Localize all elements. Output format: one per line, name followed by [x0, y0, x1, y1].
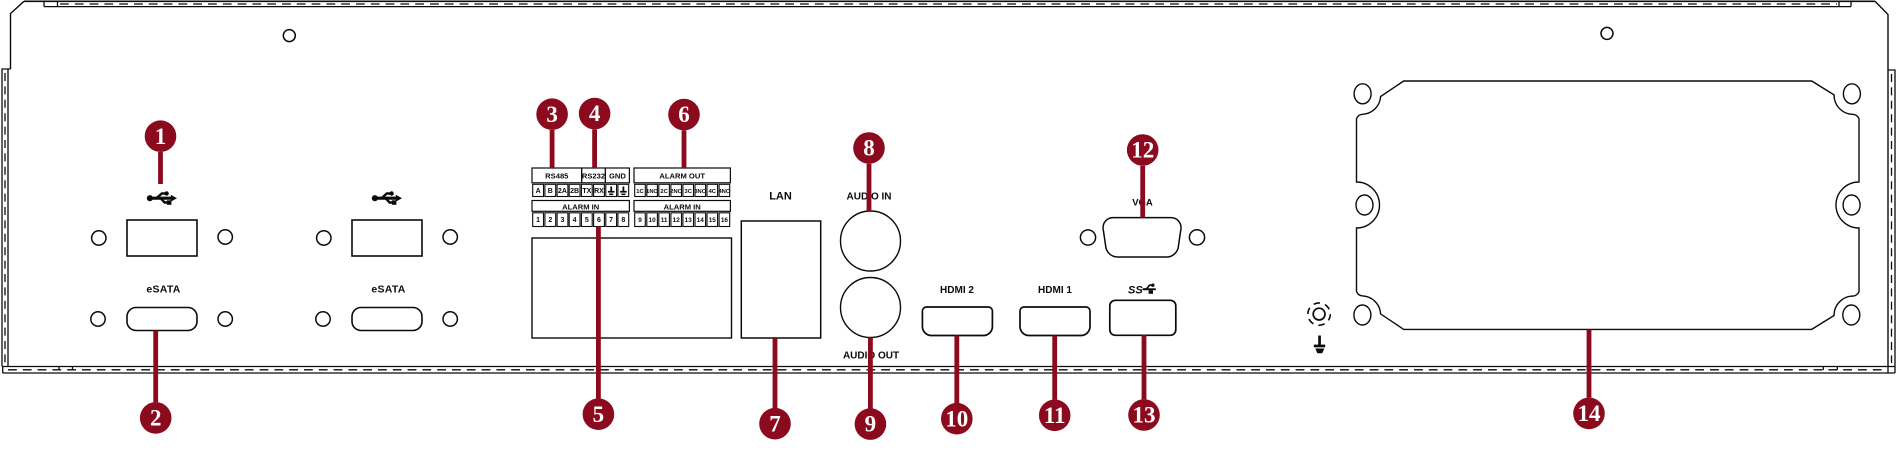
svg-text:eSATA: eSATA [371, 284, 405, 296]
svg-text:14: 14 [697, 217, 705, 224]
svg-text:4NO: 4NO [718, 189, 730, 195]
svg-text:1NO: 1NO [646, 189, 658, 195]
svg-text:3C: 3C [684, 189, 692, 195]
svg-text:5: 5 [593, 402, 605, 427]
svg-text:RS485: RS485 [545, 172, 569, 181]
svg-text:7: 7 [769, 411, 781, 436]
svg-text:13: 13 [685, 217, 693, 224]
svg-text:RX: RX [594, 188, 604, 195]
svg-text:2NO: 2NO [670, 189, 682, 195]
svg-text:LAN: LAN [769, 191, 792, 203]
svg-text:10: 10 [649, 217, 657, 224]
svg-text:11: 11 [1044, 403, 1066, 428]
svg-text:4: 4 [573, 217, 577, 224]
svg-text:9: 9 [638, 217, 642, 224]
svg-text:HDMI 1: HDMI 1 [1038, 285, 1072, 296]
svg-text:4C: 4C [709, 189, 717, 195]
svg-text:eSATA: eSATA [146, 284, 180, 296]
svg-text:8: 8 [863, 136, 875, 161]
svg-text:6: 6 [597, 217, 601, 224]
svg-text:HDMI 2: HDMI 2 [940, 285, 974, 296]
svg-text:1: 1 [536, 217, 540, 224]
svg-text:3: 3 [560, 217, 564, 224]
svg-text:SS: SS [1128, 285, 1143, 297]
svg-text:ALARM OUT: ALARM OUT [659, 172, 705, 181]
svg-text:2: 2 [548, 217, 552, 224]
svg-text:3: 3 [546, 102, 558, 127]
svg-text:2B: 2B [570, 188, 579, 195]
svg-text:1: 1 [155, 124, 167, 149]
svg-text:TX: TX [582, 188, 591, 195]
svg-text:16: 16 [721, 217, 729, 224]
svg-text:12: 12 [1131, 138, 1154, 163]
svg-text:RS232: RS232 [582, 172, 605, 181]
svg-text:6: 6 [678, 102, 690, 127]
svg-text:3NO: 3NO [694, 189, 706, 195]
svg-text:2A: 2A [558, 188, 567, 195]
svg-text:A: A [536, 188, 541, 195]
svg-text:15: 15 [709, 217, 717, 224]
svg-text:ALARM IN: ALARM IN [562, 203, 599, 212]
svg-text:12: 12 [673, 217, 681, 224]
svg-text:4: 4 [589, 101, 601, 126]
svg-text:8: 8 [621, 217, 625, 224]
svg-text:5: 5 [585, 217, 589, 224]
svg-text:13: 13 [1133, 403, 1156, 428]
svg-text:GND: GND [609, 172, 626, 181]
svg-text:B: B [548, 188, 553, 195]
svg-text:2C: 2C [660, 189, 668, 195]
svg-text:9: 9 [865, 412, 877, 437]
svg-text:10: 10 [945, 406, 968, 431]
svg-text:14: 14 [1578, 401, 1602, 426]
svg-text:2: 2 [150, 406, 162, 431]
svg-text:1C: 1C [636, 189, 644, 195]
svg-text:ALARM IN: ALARM IN [664, 203, 701, 212]
svg-text:11: 11 [661, 217, 668, 224]
svg-text:7: 7 [609, 217, 613, 224]
